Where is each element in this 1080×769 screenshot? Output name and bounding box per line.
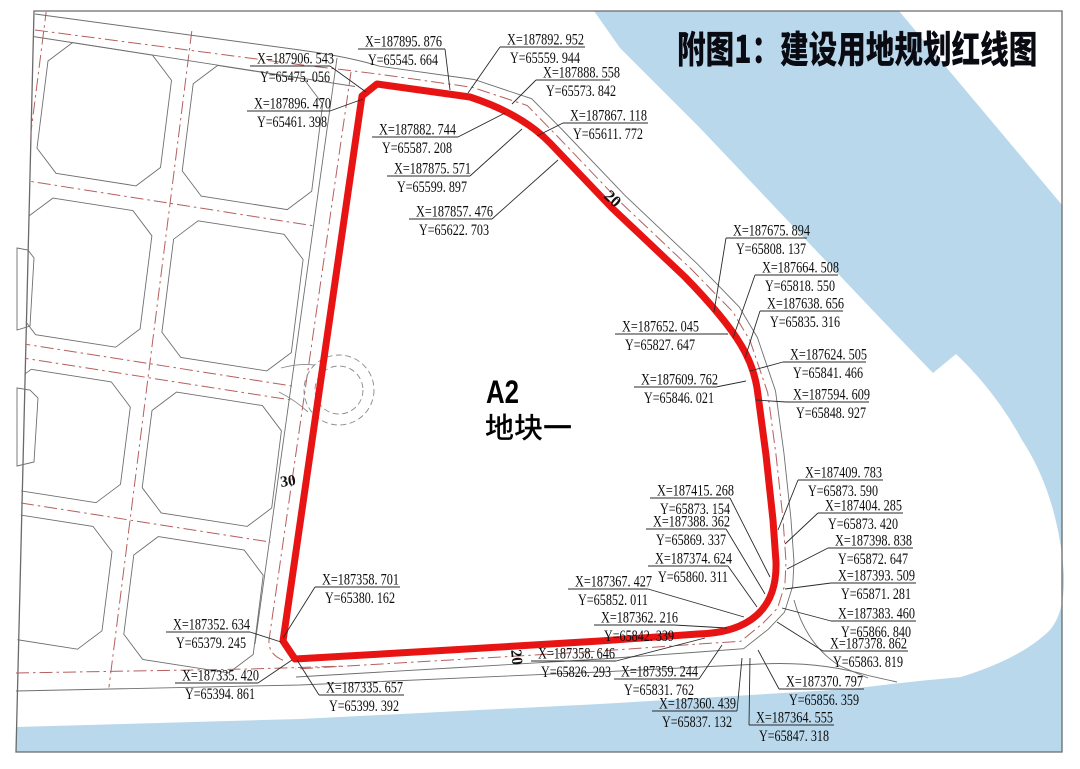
svg-text:Y=65846. 021: Y=65846. 021 <box>644 390 714 407</box>
svg-text:Y=65611. 772: Y=65611. 772 <box>573 126 643 143</box>
svg-text:A2: A2 <box>486 374 519 410</box>
svg-text:Y=65837. 132: Y=65837. 132 <box>662 714 732 731</box>
svg-text:X=187664. 508: X=187664. 508 <box>762 260 839 277</box>
svg-text:X=187360. 439: X=187360. 439 <box>659 696 736 713</box>
svg-text:X=187652. 045: X=187652. 045 <box>622 319 699 336</box>
svg-text:30: 30 <box>279 472 297 491</box>
svg-text:X=187867. 118: X=187867. 118 <box>570 108 647 125</box>
svg-text:Y=65394. 861: Y=65394. 861 <box>185 686 255 703</box>
svg-text:X=187383. 460: X=187383. 460 <box>838 606 915 623</box>
svg-text:Y=65545. 664: Y=65545. 664 <box>368 52 438 69</box>
svg-text:X=187638. 656: X=187638. 656 <box>767 296 844 313</box>
svg-text:Y=65827. 647: Y=65827. 647 <box>625 337 695 354</box>
svg-text:Y=65380. 162: Y=65380. 162 <box>325 590 395 607</box>
svg-text:X=187398. 838: X=187398. 838 <box>835 533 912 550</box>
svg-text:Y=65847. 318: Y=65847. 318 <box>759 728 829 745</box>
svg-text:Y=65461. 398: Y=65461. 398 <box>257 114 327 131</box>
svg-text:X=187857. 476: X=187857. 476 <box>416 204 493 221</box>
svg-text:X=187374. 624: X=187374. 624 <box>655 551 732 568</box>
svg-text:Y=65873. 420: Y=65873. 420 <box>828 516 898 533</box>
svg-text:X=187882. 744: X=187882. 744 <box>379 122 456 139</box>
svg-text:Y=65818. 550: Y=65818. 550 <box>765 278 835 295</box>
svg-text:Y=65599. 897: Y=65599. 897 <box>397 179 467 196</box>
svg-text:X=187367. 427: X=187367. 427 <box>575 574 652 591</box>
svg-text:X=187362. 216: X=187362. 216 <box>601 610 678 627</box>
svg-text:X=187415. 268: X=187415. 268 <box>657 483 734 500</box>
svg-text:Y=65852. 011: Y=65852. 011 <box>578 592 648 609</box>
svg-text:Y=65841. 466: Y=65841. 466 <box>793 365 863 382</box>
svg-text:X=187335. 657: X=187335. 657 <box>326 680 403 697</box>
svg-text:Y=65835. 316: Y=65835. 316 <box>770 314 840 331</box>
svg-text:Y=65863. 819: Y=65863. 819 <box>833 654 903 671</box>
svg-text:X=187896. 470: X=187896. 470 <box>254 96 331 113</box>
svg-text:X=187888. 558: X=187888. 558 <box>543 65 620 82</box>
svg-text:Y=65873. 590: Y=65873. 590 <box>808 483 878 500</box>
svg-text:X=187892. 952: X=187892. 952 <box>507 32 584 49</box>
svg-text:X=187335. 420: X=187335. 420 <box>182 668 259 685</box>
svg-text:Y=65848. 927: Y=65848. 927 <box>796 405 866 422</box>
svg-text:Y=65379. 245: Y=65379. 245 <box>176 635 246 652</box>
svg-text:X=187393. 509: X=187393. 509 <box>838 568 915 585</box>
svg-text:X=187895. 876: X=187895. 876 <box>365 34 442 51</box>
svg-text:Y=65856. 359: Y=65856. 359 <box>789 692 859 709</box>
svg-text:Y=65871. 281: Y=65871. 281 <box>841 586 911 603</box>
svg-text:X=187675. 894: X=187675. 894 <box>733 223 810 240</box>
svg-text:X=187352. 634: X=187352. 634 <box>173 617 250 634</box>
svg-text:Y=65622. 703: Y=65622. 703 <box>419 222 489 239</box>
svg-text:X=187358. 646: X=187358. 646 <box>538 646 615 663</box>
svg-text:Y=65869. 337: Y=65869. 337 <box>656 532 726 549</box>
svg-text:20: 20 <box>507 649 526 666</box>
svg-text:X=187624. 505: X=187624. 505 <box>790 347 867 364</box>
svg-text:Y=65808. 137: Y=65808. 137 <box>736 241 806 258</box>
svg-text:Y=65842. 339: Y=65842. 339 <box>604 628 674 645</box>
svg-text:Y=65826. 293: Y=65826. 293 <box>541 664 611 681</box>
svg-text:Y=65866. 840: Y=65866. 840 <box>841 624 911 641</box>
svg-text:X=187875. 571: X=187875. 571 <box>394 161 471 178</box>
svg-text:Y=65860. 311: Y=65860. 311 <box>658 569 728 586</box>
svg-text:Y=65573. 842: Y=65573. 842 <box>546 83 616 100</box>
svg-text:X=187906. 543: X=187906. 543 <box>257 51 334 68</box>
svg-text:X=187370. 797: X=187370. 797 <box>786 674 863 691</box>
svg-text:Y=65475. 056: Y=65475. 056 <box>260 69 330 86</box>
svg-text:Y=65399. 392: Y=65399. 392 <box>329 698 399 715</box>
svg-text:X=187594. 609: X=187594. 609 <box>793 387 870 404</box>
svg-text:X=187364. 555: X=187364. 555 <box>756 710 833 727</box>
svg-text:X=187404. 285: X=187404. 285 <box>825 498 902 515</box>
svg-text:X=187609. 762: X=187609. 762 <box>641 372 718 389</box>
svg-text:X=187388. 362: X=187388. 362 <box>653 514 730 531</box>
svg-text:X=187359. 244: X=187359. 244 <box>621 664 698 681</box>
svg-text:X=187358. 701: X=187358. 701 <box>322 572 399 589</box>
svg-text:Y=65587. 208: Y=65587. 208 <box>382 140 452 157</box>
svg-text:Y=65872. 647: Y=65872. 647 <box>838 551 908 568</box>
svg-text:X=187409. 783: X=187409. 783 <box>805 465 882 482</box>
